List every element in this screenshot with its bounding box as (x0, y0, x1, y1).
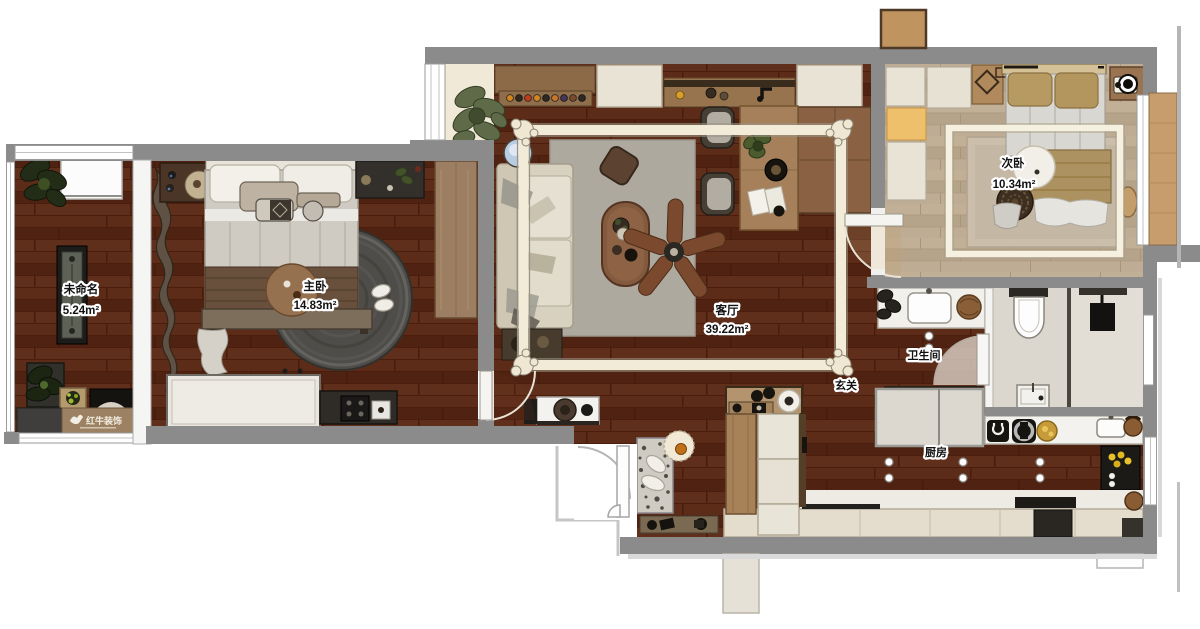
svg-text:未命名: 未命名 (63, 282, 99, 296)
svg-text:玄关: 玄关 (835, 378, 857, 392)
svg-text:10.34m²: 10.34m² (993, 179, 1036, 191)
svg-text:14.83m²: 14.83m² (294, 300, 337, 312)
svg-text:39.22m²: 39.22m² (706, 324, 749, 336)
svg-text:红牛装饰: 红牛装饰 (86, 415, 122, 426)
svg-text:5.24m²: 5.24m² (63, 305, 100, 317)
svg-text:卫生间: 卫生间 (908, 348, 941, 362)
svg-text:次卧: 次卧 (1002, 156, 1025, 170)
svg-text:主卧: 主卧 (304, 279, 327, 293)
svg-text:厨房: 厨房 (925, 445, 947, 459)
svg-text:客厅: 客厅 (715, 303, 739, 317)
